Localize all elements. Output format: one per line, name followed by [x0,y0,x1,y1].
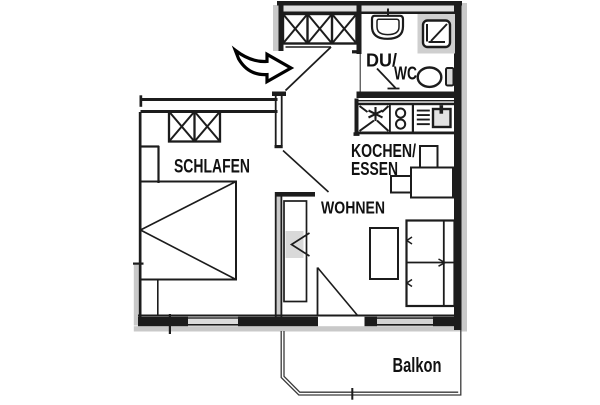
svg-text:WC: WC [394,64,417,84]
svg-text:DU/: DU/ [366,51,397,71]
svg-text:KOCHEN/: KOCHEN/ [351,141,416,161]
svg-text:SCHLAFEN: SCHLAFEN [174,157,250,178]
svg-text:Balkon: Balkon [393,355,442,377]
svg-text:ESSEN: ESSEN [351,159,398,179]
svg-text:WOHNEN: WOHNEN [321,198,385,218]
